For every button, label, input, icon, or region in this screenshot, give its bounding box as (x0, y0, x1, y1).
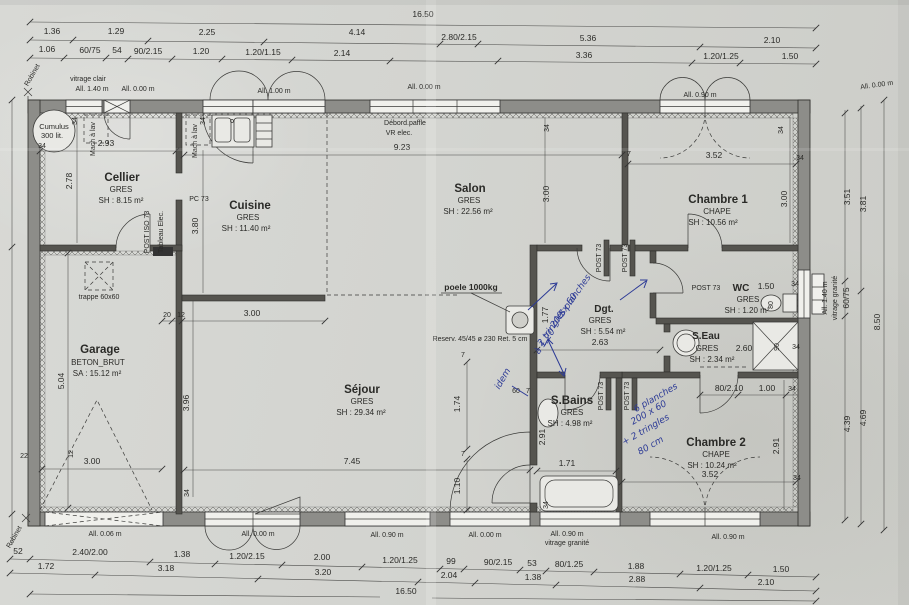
svg-text:SH : 4.98 m²: SH : 4.98 m² (548, 419, 593, 428)
door-swing (492, 465, 530, 503)
dim-label: 3.80 (190, 217, 200, 234)
svg-text:GRES: GRES (110, 185, 133, 194)
dim-label: 90/2.15 (134, 46, 163, 56)
dim-label: 1.20 (193, 46, 210, 56)
dim-label: 2.14 (334, 48, 351, 58)
svg-text:GRES: GRES (237, 213, 260, 222)
svg-text:SH : 22.56 m²: SH : 22.56 m² (443, 207, 493, 216)
dim-label: 90 (774, 343, 781, 351)
svg-text:Chambre 1: Chambre 1 (688, 194, 748, 206)
dim-label: 3.00 (244, 308, 261, 318)
dim-label: 34 (796, 155, 804, 162)
dim-label: 2.63 (592, 337, 609, 347)
svg-text:BETON_BRUT: BETON_BRUT (71, 358, 125, 367)
dim-label: 1.88 (628, 561, 645, 571)
dim-label: 7 (627, 151, 631, 158)
sill-label: All. 0.00 m (468, 532, 501, 539)
dim-label: 3.00 (541, 185, 551, 202)
dim-label: 99 (446, 556, 456, 566)
svg-text:SH : 2.34 m²: SH : 2.34 m² (690, 355, 735, 364)
dim-label: 1.20/1.25 (703, 51, 739, 61)
insulation-hatch (40, 113, 793, 118)
dim-label: 5.36 (580, 33, 597, 43)
post-column (630, 240, 635, 276)
dim-label: 12 (68, 450, 75, 458)
fixtures (22, 88, 798, 522)
dim-label: 34 (791, 281, 799, 288)
dim-label: 2.00 (314, 552, 331, 562)
svg-text:SH : 10.56 m²: SH : 10.56 m² (688, 218, 738, 227)
svg-text:GRES: GRES (589, 316, 612, 325)
post-column (604, 240, 609, 276)
dim-label: 34 (788, 386, 796, 393)
dim-label: 80/1.25 (555, 559, 584, 569)
dim-label: 1.00 (759, 383, 776, 393)
svg-text:CHAPE: CHAPE (702, 450, 730, 459)
sill-label: All. 1.40 m (822, 281, 829, 314)
sill-label: All. 0.00 m (241, 531, 274, 538)
dim-label: 1.06 (39, 44, 56, 54)
svg-text:SH : 8.15 m²: SH : 8.15 m² (99, 196, 144, 205)
bathtub-icon (540, 476, 618, 511)
dim-label: 34 (200, 117, 207, 125)
post-label: POST 73 (692, 285, 721, 292)
dim-label: 8.50 (872, 313, 882, 330)
pc-label: PC 73 (189, 196, 209, 203)
dim-label: 22 (20, 453, 28, 460)
handwritten-note: idem (493, 367, 513, 392)
dim-label: 1.20/1.15 (245, 47, 281, 57)
room-label-seau: S.EauGRES2.60SH : 2.34 m² (690, 331, 753, 364)
dim-label: 2.91 (537, 428, 547, 445)
dim-label: 1.20/1.25 (382, 555, 418, 565)
dim-label: 1.77 (540, 306, 550, 323)
door-swing (653, 263, 683, 293)
casement-swing (210, 71, 325, 100)
dim-label: 1.38 (174, 549, 191, 559)
glazing-label: vitrage granité (545, 540, 589, 547)
dim-label: 20 (163, 312, 171, 319)
room-label-sejour: SéjourGRESSH : 29.34 m² (336, 384, 386, 417)
dim-label: 2.40/2.00 (72, 547, 108, 557)
svg-text:Cellier: Cellier (104, 172, 140, 184)
sill-label: All. 0.90 m (683, 92, 716, 99)
room-label-cuisine: CuisineGRESSH : 11.40 m² (222, 200, 271, 233)
svg-text:Salon: Salon (454, 183, 485, 195)
dim-label: 2.93 (98, 138, 115, 148)
svg-text:Dgt.: Dgt. (594, 304, 614, 315)
sill-label: All. 0.00 m (121, 86, 154, 93)
dim-label: 2.78 (64, 172, 74, 189)
room-label-garage: GarageBETON_BRUTSA : 15.12 m² (71, 344, 125, 378)
dim-label: 3.36 (576, 50, 593, 60)
dim-label: 2.10 (764, 35, 781, 45)
trappe-label: trappe 60x60 (79, 294, 120, 301)
sill-label: All. 0.00 m (860, 80, 894, 92)
dim-label: 7 (461, 352, 465, 359)
svg-text:2.60: 2.60 (736, 343, 753, 353)
glazing-label: vitrage clair (70, 76, 106, 83)
dim-label: 7 (526, 388, 530, 395)
dim-label: 1.36 (44, 26, 61, 36)
dim-label: 90/2.15 (484, 557, 513, 567)
sill-label: All. 0.90 m (711, 534, 744, 541)
dim-label: 3.81 (858, 195, 868, 212)
dim-label: 3.18 (158, 563, 175, 573)
dim-label: 7 (461, 451, 465, 458)
svg-text:SH : 1.20 m²: SH : 1.20 m² (725, 306, 770, 315)
dim-label: 1.50 (773, 564, 790, 574)
svg-text:1.50: 1.50 (758, 281, 775, 291)
dim-label: 1.20/1.25 (696, 563, 732, 573)
svg-text:GRES: GRES (351, 397, 374, 406)
post-label: POST 73 (596, 244, 603, 273)
post-column (606, 378, 611, 410)
dim-label: 1.20/2.15 (229, 551, 265, 561)
door-swing (700, 375, 738, 413)
svg-text:GRES: GRES (696, 344, 719, 353)
dim-label: 2.04 (441, 570, 458, 580)
dim-label: 7.45 (344, 456, 361, 466)
svg-text:Cuisine: Cuisine (229, 200, 271, 212)
sill-label: All. 0.90 m (370, 532, 403, 539)
dim-label: 5.04 (56, 372, 66, 389)
robinet-icon (24, 88, 32, 100)
room-label-chambre1: Chambre 1CHAPESH : 10.56 m² (688, 194, 748, 227)
dim-label: 34 (544, 124, 551, 132)
room-label-salon: SalonGRESSH : 22.56 m² (443, 183, 493, 216)
tableau-label: Tableau Elec. (158, 211, 165, 253)
dim-label: 2.88 (629, 574, 646, 584)
svg-text:CHAPE: CHAPE (703, 207, 731, 216)
dim-label: 2.10 (758, 577, 775, 587)
svg-text:S.Eau: S.Eau (692, 331, 720, 342)
post-label: POST 73 (598, 382, 605, 411)
dim-label: 54 (112, 45, 122, 55)
room-label-cellier: CellierGRESSH : 8.15 m² (99, 172, 144, 205)
dim-label: 3.51 (842, 188, 852, 205)
dim-label: 1.38 (525, 572, 542, 582)
dim-label: 34 (778, 126, 785, 134)
svg-text:Garage: Garage (80, 344, 120, 356)
equipment-labels: Cumulus 300 lit. Mach à lav Mach à lav P… (39, 122, 720, 411)
dim-label: 1.50 (782, 51, 799, 61)
svg-text:WC: WC (733, 283, 750, 294)
overhang-label: Débord.paffle (384, 120, 426, 127)
svg-text:S.Bains: S.Bains (551, 395, 593, 407)
dim-label: 1.71 (559, 458, 576, 468)
svg-text:SH : 29.34 m²: SH : 29.34 m² (336, 408, 386, 417)
dim-label: 34 (792, 344, 800, 351)
dim-label: 3.52 (706, 150, 723, 160)
dim-label: 34 (793, 475, 801, 482)
dim-label: 53 (527, 558, 537, 568)
floor-plan-drawing: 16.50 1.36 1.29 2.25 4.14 2.80/2.15 5.36… (0, 0, 909, 605)
appliance-label: Mach à lav (192, 124, 199, 158)
svg-text:GRES: GRES (561, 408, 584, 417)
dim-label: 60/75 (79, 45, 101, 55)
room-label-chambre2: Chambre 2CHAPESH : 10.24 m² (686, 437, 745, 470)
post-label: POST ISO 73 (144, 211, 151, 254)
dim-label: 1.72 (38, 561, 55, 571)
dim-label: 2.80/2.15 (441, 32, 477, 42)
post-label: POST 73 (622, 244, 629, 273)
dim-label: 80/2.10 (715, 383, 744, 393)
svg-text:SH : 10.24 m²: SH : 10.24 m² (687, 461, 737, 470)
reserv-label: Reserv. 45/45 ø 230 Ret. 5 cm (433, 336, 528, 343)
dim-label: 1.29 (108, 26, 125, 36)
dim-label: 2.25 (199, 27, 216, 37)
trappe-icon (85, 262, 113, 290)
svg-text:GRES: GRES (458, 196, 481, 205)
cumulus-label: 300 lit. (41, 131, 63, 140)
handwritten-arrow (620, 280, 647, 300)
dim-label: 1.10 (452, 477, 462, 494)
svg-text:SA : 15.12 m²: SA : 15.12 m² (73, 369, 122, 378)
dim-label: 52 (13, 546, 23, 556)
dim-label: 4.14 (349, 27, 366, 37)
room-label-dgt: Dgt.GRESSH : 5.54 m² (581, 304, 626, 336)
dim-label: 4.39 (842, 415, 852, 432)
svg-text:GRES: GRES (737, 295, 760, 304)
svg-text:Chambre 2: Chambre 2 (686, 437, 745, 449)
sill-label: All. 0.90 m (550, 531, 583, 538)
svg-text:SH : 5.54 m²: SH : 5.54 m² (581, 327, 626, 336)
dim-label: 4.69 (858, 409, 868, 426)
scanned-floor-plan: 16.50 1.36 1.29 2.25 4.14 2.80/2.15 5.36… (0, 0, 909, 605)
dim-label: 34 (184, 489, 191, 497)
svg-text:Séjour: Séjour (344, 384, 380, 396)
robinet-label: Robinet (24, 63, 42, 87)
cumulus-label: Cumulus (39, 122, 69, 131)
dim-label: 3.00 (779, 190, 789, 207)
shutter-label: VR elec. (386, 130, 413, 137)
glazing-label: vitrage granité (832, 276, 839, 320)
dim-label: 34 (72, 117, 79, 125)
dim-label: 3.00 (84, 456, 101, 466)
post-label: POST 73 (624, 382, 631, 411)
dim-label: 12 (177, 312, 185, 319)
svg-text:SH : 11.40 m²: SH : 11.40 m² (222, 224, 271, 233)
dim-label: 34 (543, 501, 550, 509)
sill-label: All. 0.06 m (88, 531, 121, 538)
dim-label: 1.74 (452, 395, 462, 412)
interior-walls (40, 113, 798, 514)
dim-label: 3.20 (315, 567, 332, 577)
garage-door-swing (40, 400, 152, 510)
door-swing (450, 432, 530, 512)
sill-label: All. 1.40 m (75, 86, 108, 93)
dim-label: 2.91 (771, 437, 781, 454)
dim-label: 3.52 (702, 469, 719, 479)
poele-label: poele 1000kg (444, 282, 497, 292)
dim-label: 16.50 (395, 586, 417, 596)
sill-label: All. 1.00 m (257, 88, 290, 95)
dim-label: 3.96 (181, 394, 191, 411)
dim-label: 60/75 (841, 287, 851, 309)
